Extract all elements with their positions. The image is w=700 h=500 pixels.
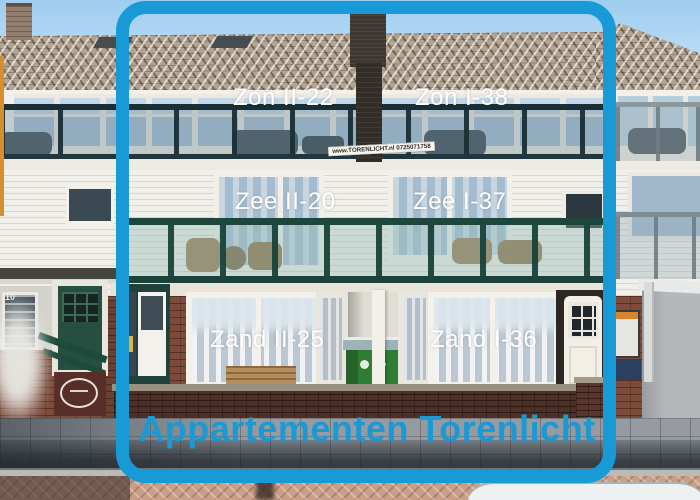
drainpipe (644, 282, 654, 382)
maroon-sign-oval (60, 378, 98, 408)
apartment-label-zee-i: Zee I-37 (413, 190, 506, 214)
apartment-label-zon-ii: Zon II-22 (233, 86, 334, 110)
apartment-label-zand-i: Zand I-36 (430, 328, 537, 352)
notice-board-header (616, 312, 638, 319)
maroon-sign-text-mark (70, 390, 88, 392)
apartment-label-zand-ii: Zand II-25 (210, 328, 324, 352)
apartment-label-zee-ii: Zee II-20 (235, 190, 336, 214)
pink-pavement-shadow-left (0, 476, 130, 500)
parked-car-roof (468, 482, 700, 500)
left-edge-pipe (0, 56, 4, 216)
top-balcony-right-grey-railing (616, 102, 700, 161)
chimney-left (6, 3, 32, 40)
neighbor-window-middle (66, 186, 114, 224)
photo-scene: www.TORENLICHT.nl 0725071758 10 (0, 0, 700, 500)
cellar-doors (613, 360, 641, 380)
porch-door-panes (62, 292, 98, 322)
apartment-label-zon-i: Zon I-38 (415, 86, 508, 110)
right-outside-grey-railing (616, 212, 700, 279)
lens-blur-blob (0, 296, 50, 426)
main-title: Appartementen Torenlicht (118, 409, 616, 449)
